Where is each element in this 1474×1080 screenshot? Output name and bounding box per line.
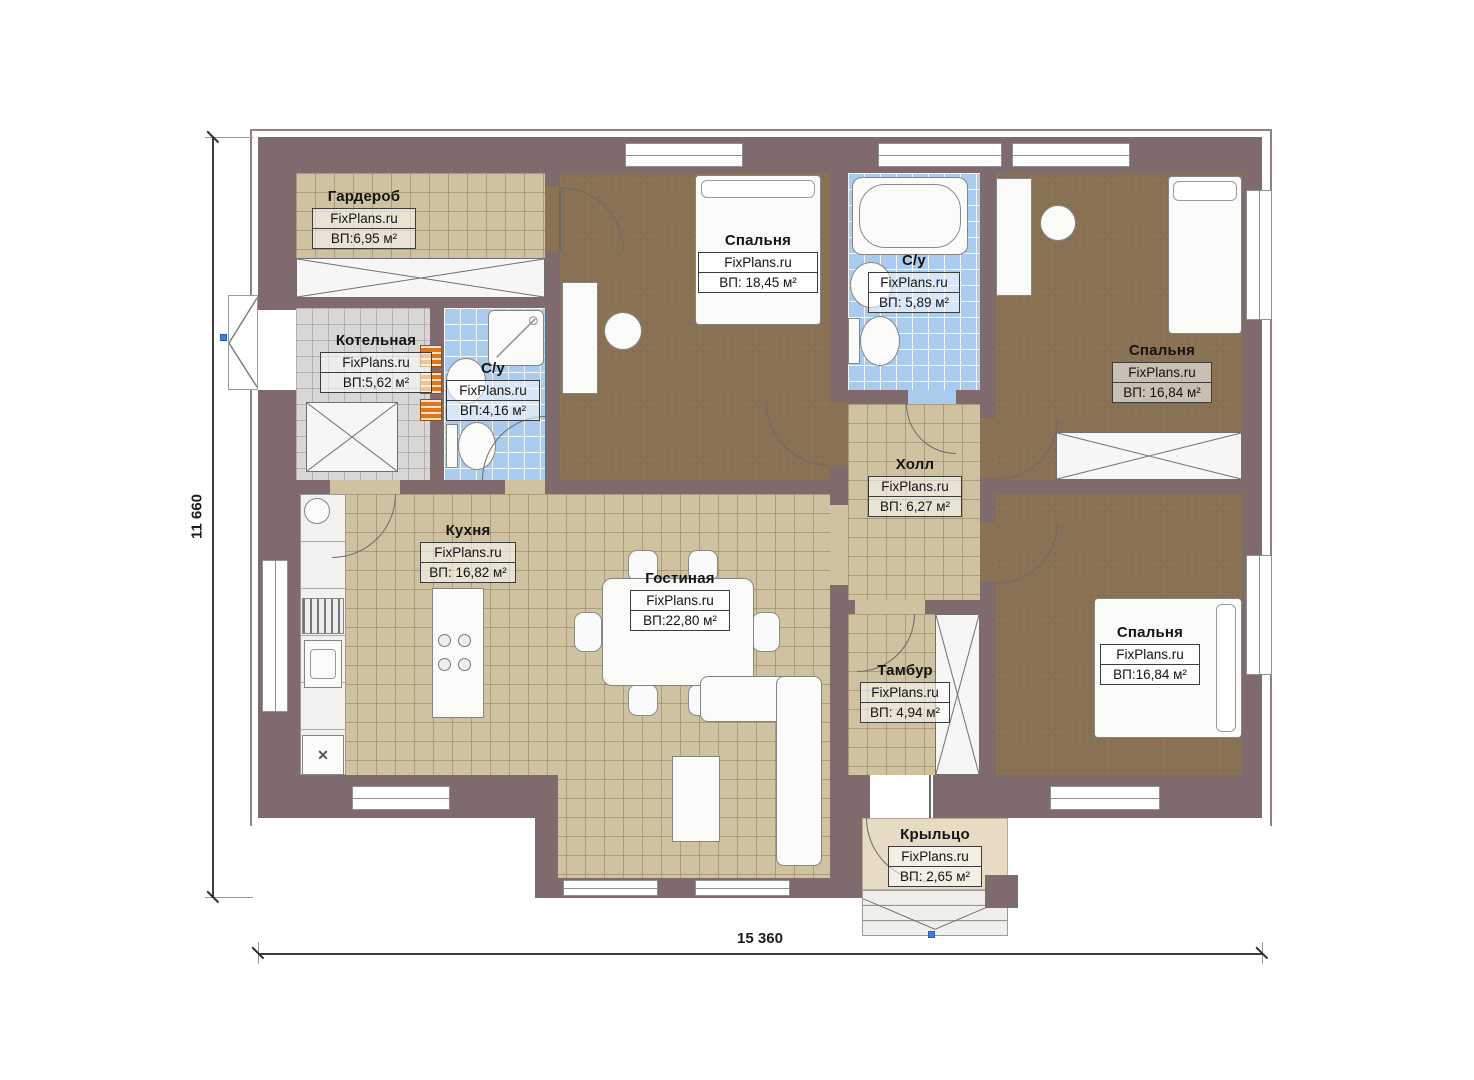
burner-icon	[458, 658, 471, 671]
fridge-icon: ✕	[302, 735, 344, 775]
brand-text: FixPlans.ru	[447, 381, 539, 401]
window	[563, 880, 658, 896]
bed-pillow	[1173, 181, 1237, 201]
room-name: С/у	[868, 252, 960, 269]
room-area: ВП:16,84 м²	[1101, 665, 1199, 684]
doorway	[980, 522, 996, 582]
window	[625, 143, 743, 167]
burner-icon	[438, 634, 451, 647]
room-label-living: Гостиная FixPlans.ru ВП:22,80 м²	[630, 570, 730, 631]
room-area: ВП:6,95 м²	[313, 229, 415, 248]
room-area: ВП:4,16 м²	[447, 401, 539, 420]
room-name: Холл	[868, 456, 962, 473]
doorway	[908, 390, 956, 404]
brand-text: FixPlans.ru	[869, 273, 959, 293]
kitchen-island	[432, 588, 484, 718]
room-label-bedroom3: Спальня FixPlans.ru ВП:16,84 м²	[1100, 624, 1200, 685]
dimension-height-label: 11 660	[189, 475, 206, 559]
outline-left	[250, 129, 252, 826]
dimension-line-horizontal	[258, 953, 1262, 955]
grip-marker	[220, 334, 227, 341]
closet-cross	[296, 258, 545, 298]
room-label-boiler: Котельная FixPlans.ru ВП:5,62 м²	[320, 332, 432, 393]
bed-pillow	[1216, 604, 1236, 732]
doorway	[980, 418, 996, 478]
room-name: Спальня	[1100, 624, 1200, 641]
burner-icon	[438, 658, 451, 671]
porch-pier	[985, 875, 1018, 908]
doorway	[330, 480, 400, 494]
toilet-tank	[848, 318, 860, 364]
brand-text: FixPlans.ru	[313, 209, 415, 229]
room-name: Спальня	[698, 232, 818, 249]
brand-text: FixPlans.ru	[1101, 645, 1199, 665]
dining-chair	[628, 684, 658, 716]
room-name: Котельная	[320, 332, 432, 349]
room-name: Кухня	[420, 522, 516, 539]
room-label-bedroom1: Спальня FixPlans.ru ВП: 18,45 м²	[698, 232, 818, 293]
room-label-bath1: С/у FixPlans.ru ВП:4,16 м²	[446, 360, 540, 421]
grip-marker	[928, 931, 935, 938]
pot	[304, 498, 330, 524]
dimension-width-label: 15 360	[710, 930, 810, 947]
closet-cross	[1056, 432, 1242, 480]
bed-pillow	[701, 180, 815, 198]
toilet	[860, 316, 900, 366]
boiler-equipment-cross	[306, 402, 398, 472]
doorway	[830, 505, 848, 585]
brand-text: FixPlans.ru	[321, 353, 431, 373]
dining-chair	[574, 612, 602, 652]
room-name: С/у	[446, 360, 540, 377]
room-label-tambour: Тамбур FixPlans.ru ВП: 4,94 м²	[860, 662, 950, 723]
door-swing-outside	[228, 295, 258, 390]
chair	[1040, 205, 1076, 241]
room-area: ВП: 16,84 м²	[1113, 383, 1211, 402]
sofa-seat	[776, 676, 822, 866]
room-area: ВП: 2,65 м²	[889, 867, 981, 886]
room-label-bath2: С/у FixPlans.ru ВП: 5,89 м²	[868, 252, 960, 313]
brand-text: FixPlans.ru	[861, 683, 949, 703]
doorway	[505, 480, 545, 494]
brand-text: FixPlans.ru	[1113, 363, 1211, 383]
room-name: Крыльцо	[888, 826, 982, 843]
room-label-wardrobe: Гардероб FixPlans.ru ВП:6,95 м²	[312, 188, 416, 249]
room-label-hall: Холл FixPlans.ru ВП: 6,27 м²	[868, 456, 962, 517]
room-name: Спальня	[1112, 342, 1212, 359]
room-area: ВП: 6,27 м²	[869, 497, 961, 516]
boiler-door-opening	[258, 310, 296, 390]
brand-text: FixPlans.ru	[889, 847, 981, 867]
kitchen-sink	[304, 640, 342, 688]
dimension-line-vertical	[212, 137, 214, 898]
room-label-bedroom2: Спальня FixPlans.ru ВП: 16,84 м²	[1112, 342, 1212, 403]
room-name: Гостиная	[630, 570, 730, 587]
room-area: ВП: 16,82 м²	[421, 563, 515, 582]
stove	[302, 598, 344, 634]
room-area: ВП: 5,89 м²	[869, 293, 959, 312]
room-label-kitchen: Кухня FixPlans.ru ВП: 16,82 м²	[420, 522, 516, 583]
shower	[488, 310, 544, 366]
doorway	[545, 186, 560, 252]
room-area: ВП: 18,45 м²	[699, 273, 817, 292]
room-area: ВП: 4,94 м²	[861, 703, 949, 722]
brand-text: FixPlans.ru	[869, 477, 961, 497]
coffee-table	[672, 756, 720, 842]
window	[1246, 190, 1272, 320]
doorway	[855, 600, 925, 614]
window	[1050, 786, 1160, 810]
outline-top	[250, 129, 1272, 131]
window	[695, 880, 790, 896]
radiator	[420, 399, 442, 421]
room-label-porch: Крыльцо FixPlans.ru ВП: 2,65 м²	[888, 826, 982, 887]
window	[352, 786, 450, 810]
window	[1246, 555, 1272, 675]
front-door-leaf	[929, 775, 931, 818]
floor-plan-canvas: ✕ Гардероб FixPlans.ru ВП:6,95 м² Котель…	[0, 0, 1474, 1080]
toilet-tank	[446, 424, 458, 468]
front-door-opening	[870, 775, 933, 818]
door-leaf	[559, 187, 561, 251]
brand-text: FixPlans.ru	[421, 543, 515, 563]
bathtub	[852, 177, 968, 255]
room-name: Гардероб	[312, 188, 416, 205]
doorway	[830, 402, 848, 465]
desk	[996, 178, 1032, 296]
chair	[604, 312, 642, 350]
brand-text: FixPlans.ru	[631, 591, 729, 611]
burner-icon	[458, 634, 471, 647]
window	[1012, 143, 1130, 167]
window	[878, 143, 1002, 167]
brand-text: FixPlans.ru	[699, 253, 817, 273]
desk	[562, 282, 598, 394]
room-area: ВП:22,80 м²	[631, 611, 729, 630]
room-area: ВП:5,62 м²	[321, 373, 431, 392]
room-name: Тамбур	[860, 662, 950, 679]
window	[262, 560, 288, 712]
dining-chair	[752, 612, 780, 652]
